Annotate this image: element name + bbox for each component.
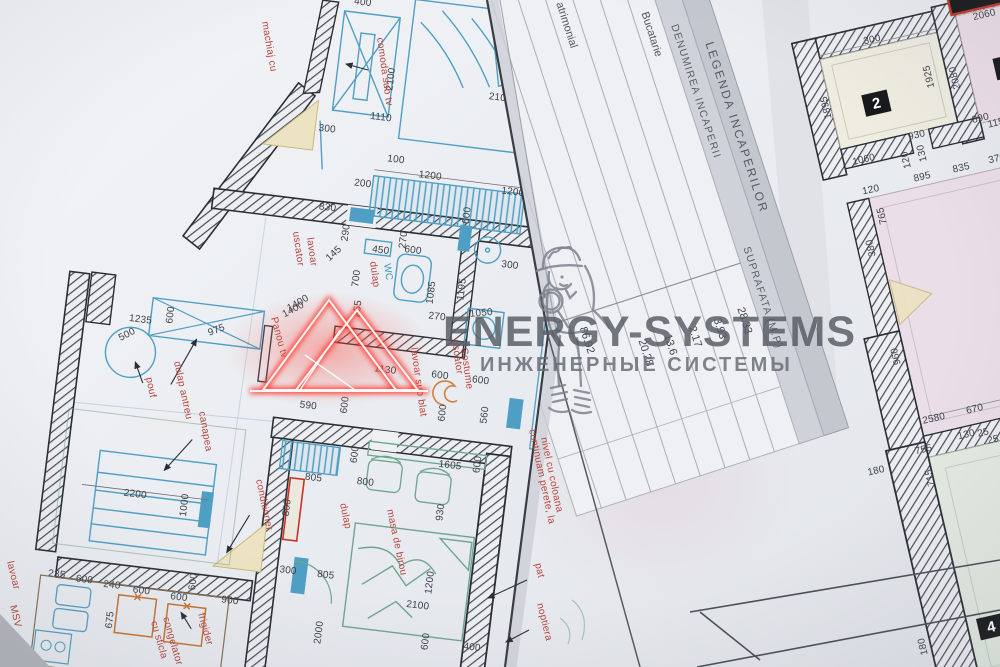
dimension-label: 600 [170, 591, 189, 604]
dimension-label: 800 [356, 476, 375, 489]
dimension-label: 830 [318, 201, 337, 214]
dimension-label: 400 [463, 641, 482, 654]
dimension-label: 600 [404, 244, 423, 257]
dimension-label: 805 [304, 472, 323, 485]
room-label: WC [381, 263, 394, 281]
watermark-subtitle: ИНЖЕНЕРНЫЕ СИСТЕМЫ [480, 354, 793, 376]
dimension-label: 235 [48, 568, 67, 581]
dimension-label: 290 [340, 223, 353, 242]
dimension-label: 560 [478, 406, 491, 425]
dimension-label: 700 [350, 269, 363, 288]
watermark-title: ENERGY-SYSTEMS [443, 308, 856, 356]
dimension-label: 600 [132, 584, 151, 597]
dimension-label: 300 [318, 123, 337, 136]
dimension-label: 600 [436, 403, 449, 422]
dimension-label: 805 [316, 569, 335, 582]
dimension-label: 200 [353, 177, 372, 190]
dimension-label: 600 [461, 206, 474, 225]
dimension-label: 930 [434, 503, 447, 522]
dimension-label: 600 [431, 369, 450, 382]
door-gap [370, 429, 398, 452]
dimension-label: 300 [501, 259, 520, 272]
dimension-label: 300 [279, 564, 298, 577]
dimension-label: 600 [187, 572, 200, 591]
dimension-label: 600 [164, 306, 177, 325]
dimension-label: 600 [471, 455, 484, 474]
dimension-label: 100 [387, 153, 406, 166]
blueprint-scene: LEGENDA INCAPERILOR DENUMIREA INCAPERII … [0, 0, 1000, 667]
dimension-label: 600 [419, 632, 432, 651]
dimension-label: 800 [281, 498, 294, 517]
dimension-label: 675 [104, 610, 117, 629]
dimension-label: 900 [221, 594, 240, 607]
blueprint-photo: LEGENDA INCAPERILOR DENUMIREA INCAPERII … [0, 0, 1000, 667]
dimension-label: 600 [75, 573, 94, 586]
dimension-label: 240 [103, 579, 122, 592]
dimension-label: 600 [349, 445, 362, 464]
dimension-label: 450 [371, 244, 390, 257]
wall [86, 272, 116, 325]
